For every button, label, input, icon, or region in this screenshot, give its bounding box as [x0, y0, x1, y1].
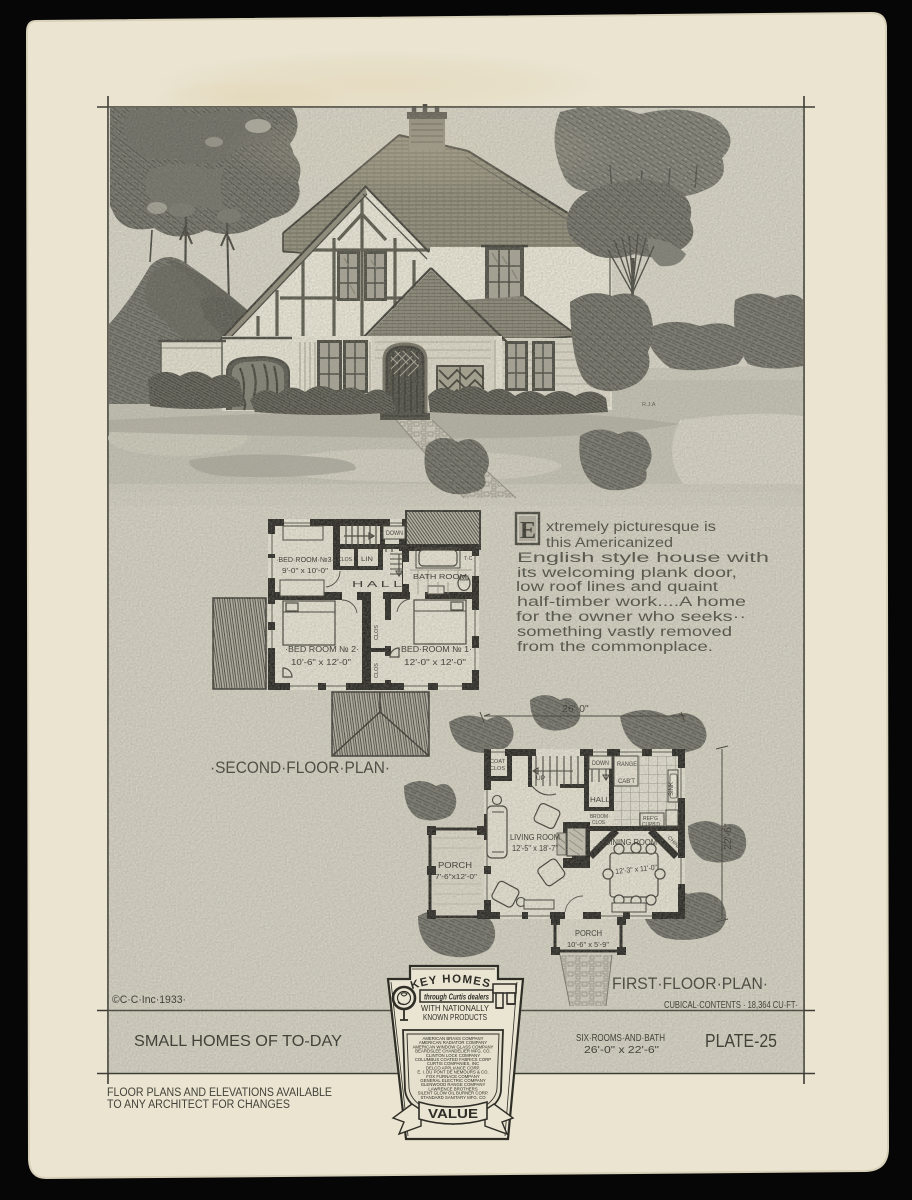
svg-text:VALUE: VALUE [428, 1107, 478, 1121]
svg-text:WITH NATIONALLY: WITH NATIONALLY [421, 1004, 490, 1013]
svg-text:KNOWN PRODUCTS: KNOWN PRODUCTS [423, 1013, 487, 1022]
svg-text:26'-0" x 22'-6": 26'-0" x 22'-6" [584, 1044, 659, 1056]
svg-text:STANDARD SANITARY MFG. CO: STANDARD SANITARY MFG. CO [420, 1095, 486, 1100]
svg-text:PLATE-25: PLATE-25 [705, 1030, 777, 1051]
svg-text:TO ANY ARCHITECT FOR CHANGES: TO ANY ARCHITECT FOR CHANGES [107, 1099, 290, 1111]
svg-text:CUBICAL·CONTENTS · 18,364 CU·F: CUBICAL·CONTENTS · 18,364 CU·FT· [664, 999, 798, 1011]
svg-text:SMALL HOMES OF TO-DAY: SMALL HOMES OF TO-DAY [134, 1033, 342, 1050]
svg-text:FLOOR PLANS AND ELEVATIONS AVA: FLOOR PLANS AND ELEVATIONS AVAILABLE [107, 1087, 332, 1099]
svg-text:©C·C·Inc·1933·: ©C·C·Inc·1933· [112, 994, 186, 1006]
svg-text:through Curtis dealers: through Curtis dealers [424, 993, 489, 1002]
svg-text:SIX·ROOMS·AND·BATH: SIX·ROOMS·AND·BATH [576, 1033, 665, 1044]
